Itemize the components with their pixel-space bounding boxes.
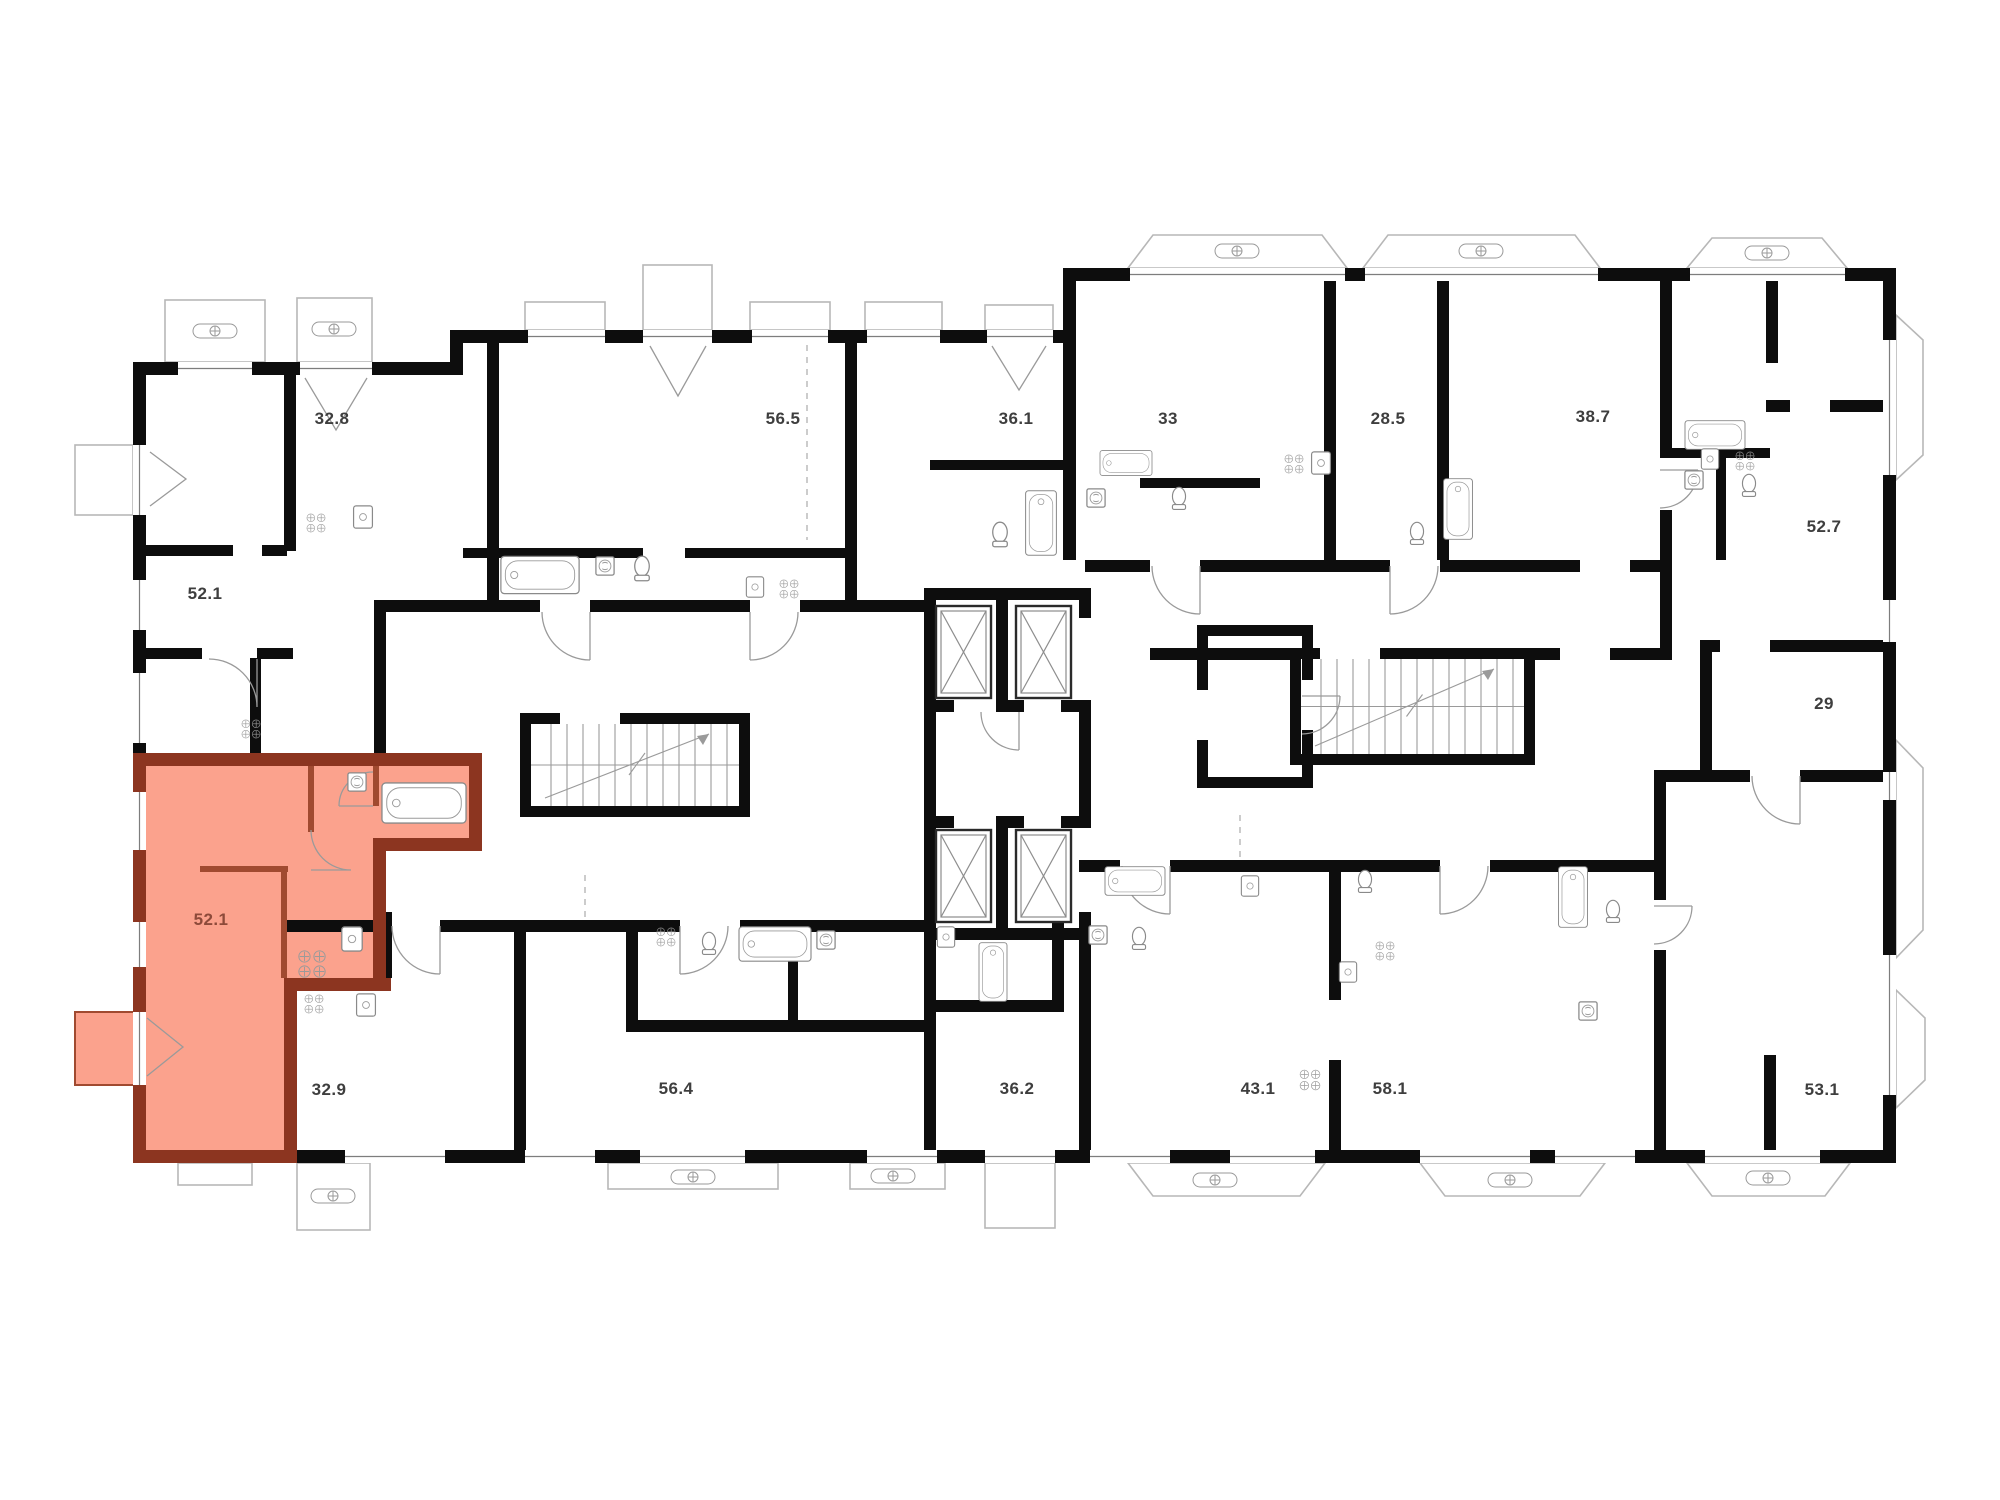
wall-segment: [800, 600, 936, 612]
bay-window-outline: [1896, 740, 1923, 958]
balcony-outline: [750, 302, 830, 330]
wall-segment: [739, 713, 750, 817]
stove-icon: [1300, 1070, 1320, 1090]
highlight-wall-segment: [133, 1150, 297, 1163]
balcony-outline: [1128, 1163, 1325, 1196]
balcony-outline: [985, 1163, 1055, 1228]
sink-icon: [1701, 449, 1718, 469]
wall-segment: [1380, 648, 1535, 659]
bathtub-icon: [1444, 479, 1473, 540]
balcony-outline: [178, 1163, 252, 1185]
wall-segment: [924, 920, 936, 1163]
wall-segment: [930, 460, 1070, 470]
wall-segment: [924, 816, 954, 828]
door-arc: [1440, 866, 1488, 914]
wall-segment: [1197, 777, 1313, 788]
wall-segment: [1660, 268, 1672, 458]
wall-segment: [380, 600, 540, 612]
wall-segment: [1770, 640, 1895, 652]
wall-segment: [520, 713, 531, 817]
sink-icon: [1339, 962, 1356, 982]
washing-machine-icon: [1087, 489, 1105, 507]
wall-segment: [1654, 950, 1666, 1163]
highlight-partition: [200, 866, 288, 872]
stove-icon: [780, 580, 798, 598]
washing-machine-icon: [596, 557, 614, 575]
wall-segment: [1200, 560, 1390, 572]
stair-direction-arrow: [1482, 669, 1494, 680]
wall-segment: [1085, 560, 1150, 572]
room-area-label[interactable]: 36.1: [999, 409, 1034, 428]
wall-segment: [1524, 648, 1535, 765]
wall-segment: [924, 588, 936, 940]
toilet-icon: [1132, 927, 1145, 949]
door-arc: [1152, 566, 1200, 614]
door-arc: [392, 926, 440, 974]
wall-segment: [1079, 912, 1091, 1163]
wall-segment: [1630, 560, 1660, 572]
toilet-icon: [993, 522, 1008, 547]
wall-segment: [924, 700, 954, 712]
door-arc: [1390, 566, 1438, 614]
wall-segment: [1052, 920, 1064, 1012]
wall-segment: [374, 600, 386, 760]
room-area-label[interactable]: 52.1: [188, 584, 223, 603]
elevator-shaft: [936, 830, 991, 922]
room-area-label[interactable]: 53.1: [1805, 1080, 1840, 1099]
wall-segment: [996, 816, 1008, 940]
wall-segment: [1610, 648, 1660, 660]
room-area-label[interactable]: 32.8: [315, 409, 350, 428]
wall-segment: [133, 545, 233, 556]
toilet-icon: [1358, 870, 1371, 892]
room-area-label[interactable]: 43.1: [1241, 1079, 1276, 1098]
sink-icon: [354, 506, 373, 528]
wall-segment: [250, 658, 261, 760]
washing-machine-icon: [348, 773, 366, 791]
room-area-label[interactable]: 58.1: [1373, 1079, 1408, 1098]
wall-segment: [142, 648, 202, 659]
door-arc: [750, 612, 798, 660]
staircase-left: [531, 724, 739, 806]
balcony-outline: [643, 265, 712, 330]
toilet-icon: [1172, 487, 1185, 509]
bay-window-outline: [1896, 990, 1925, 1108]
wall-segment: [1654, 770, 1666, 900]
wall-segment: [626, 920, 638, 1032]
sink-icon: [1312, 452, 1331, 474]
door-arc: [209, 659, 257, 707]
room-area-label[interactable]: 56.5: [766, 409, 801, 428]
wall-segment: [1766, 400, 1790, 412]
balcony-outline: [75, 445, 133, 515]
stair-direction-line: [1315, 669, 1494, 746]
washing-machine-icon: [1089, 926, 1107, 944]
wall-segment: [1290, 648, 1301, 765]
sink-icon: [1241, 876, 1258, 896]
wall-segment: [1140, 478, 1260, 488]
wall-segment: [1197, 625, 1313, 636]
bathtub-icon: [979, 943, 1007, 1002]
wall-segment: [1079, 588, 1091, 618]
bathtub-icon: [501, 556, 579, 593]
balcony-outline: [985, 305, 1053, 330]
washing-machine-icon: [1685, 471, 1703, 489]
room-area-label[interactable]: 28.5: [1371, 409, 1406, 428]
sink-icon: [357, 994, 376, 1016]
toilet-icon: [1742, 474, 1755, 496]
balcony-door-swing: [650, 346, 706, 396]
stove-icon: [1285, 455, 1303, 473]
wall-segment: [1440, 560, 1580, 572]
wall-segment: [284, 375, 296, 551]
wall-segment: [1061, 816, 1091, 828]
wall-segment: [1063, 268, 1076, 560]
wall-segment: [1170, 860, 1335, 872]
wall-segment: [1000, 816, 1024, 828]
wall-segment: [1654, 770, 1750, 782]
bathtub-icon: [1026, 491, 1057, 556]
wall-segment: [1341, 860, 1440, 872]
bathtub-icon: [382, 783, 466, 823]
room-area-label[interactable]: 56.4: [659, 1079, 694, 1098]
washing-machine-icon: [817, 931, 835, 949]
room-area-label[interactable]: 38.7: [1576, 407, 1611, 426]
staircase-right: [1301, 659, 1524, 754]
wall-segment: [520, 806, 750, 817]
stove-icon: [307, 514, 325, 532]
wall-segment: [1324, 268, 1336, 560]
balcony-outline: [525, 302, 605, 330]
floor-plan-canvas: 32.8 56.5 36.1 33 28.5 38.7 52.7 52.1 29…: [0, 0, 2000, 1500]
stove-icon: [305, 995, 323, 1013]
wall-segment: [1800, 770, 1895, 782]
toilet-icon: [1606, 900, 1619, 922]
bathtub-icon: [1685, 421, 1745, 450]
wall-segment: [590, 600, 750, 612]
elevator-shaft: [1016, 606, 1071, 698]
wall-segment: [1079, 700, 1091, 816]
wall-segment: [1700, 640, 1712, 782]
wall-segment: [1061, 700, 1091, 712]
door-arc: [1752, 776, 1800, 824]
bathtub-icon: [1105, 867, 1165, 896]
highlight-partition: [308, 766, 314, 832]
room-area-label[interactable]: 29: [1814, 694, 1834, 713]
elevator-shaft: [1016, 830, 1071, 922]
balcony-door-swing: [992, 346, 1046, 390]
wall-segment: [1764, 1055, 1776, 1150]
stove-icon: [1376, 942, 1394, 960]
wall-segment: [514, 920, 526, 1163]
room-area-label[interactable]: 33: [1158, 409, 1178, 428]
washing-machine-icon: [1579, 1002, 1597, 1020]
wall-segment: [1290, 754, 1535, 765]
wall-segment: [1535, 648, 1560, 660]
door-arc: [542, 612, 590, 660]
highlight-wall-segment: [373, 838, 386, 991]
toilet-icon: [635, 556, 650, 581]
wall-segment: [440, 920, 680, 932]
stair-direction-line: [545, 734, 709, 798]
highlight-wall-segment: [469, 753, 482, 851]
room-area-label[interactable]: 52.7: [1807, 517, 1842, 536]
wall-segment: [626, 1020, 936, 1032]
toilet-icon: [702, 932, 715, 954]
bathtub-icon: [739, 927, 811, 961]
wall-segment: [1766, 268, 1778, 363]
sink-icon: [746, 577, 763, 597]
selected-apartment-balcony: [75, 1012, 139, 1085]
highlight-partition: [373, 766, 379, 806]
wall-segment: [620, 713, 750, 724]
wall-segment: [487, 330, 499, 600]
wall-segment: [257, 648, 293, 659]
balcony-door-swing: [150, 452, 186, 506]
wall-segment: [1000, 700, 1024, 712]
highlight-wall-segment: [133, 753, 482, 766]
balcony-outline: [865, 302, 942, 330]
wall-segment: [685, 548, 845, 558]
wall-segment: [1660, 510, 1672, 660]
wall-segment: [450, 330, 463, 375]
wall-segment: [262, 545, 287, 556]
wall-segment: [1329, 1060, 1341, 1163]
wall-segment: [1150, 648, 1290, 660]
bay-window-outline: [1896, 315, 1923, 480]
highlight-wall-segment: [284, 978, 391, 991]
elevator-shaft: [936, 606, 991, 698]
highlight-wall-segment: [284, 978, 297, 1163]
wall-segment: [845, 330, 857, 612]
sink-icon: [342, 927, 362, 951]
stair-direction-arrow: [697, 734, 709, 745]
toilet-icon: [1410, 522, 1423, 544]
door-arc: [981, 712, 1019, 750]
room-area-label[interactable]: 32.9: [312, 1080, 347, 1099]
room-area-label-selected[interactable]: 52.1: [194, 910, 229, 929]
sink-icon: [937, 927, 954, 947]
bathtub-icon: [1559, 867, 1588, 928]
highlight-partition: [281, 866, 287, 978]
wall-segment: [284, 920, 384, 932]
room-area-label[interactable]: 36.2: [1000, 1079, 1035, 1098]
door-arc: [1654, 906, 1692, 944]
highlight-wall-segment: [373, 838, 482, 851]
wall-segment: [996, 588, 1008, 712]
wall-segment: [1197, 740, 1208, 788]
bathtub-icon: [1100, 451, 1152, 476]
